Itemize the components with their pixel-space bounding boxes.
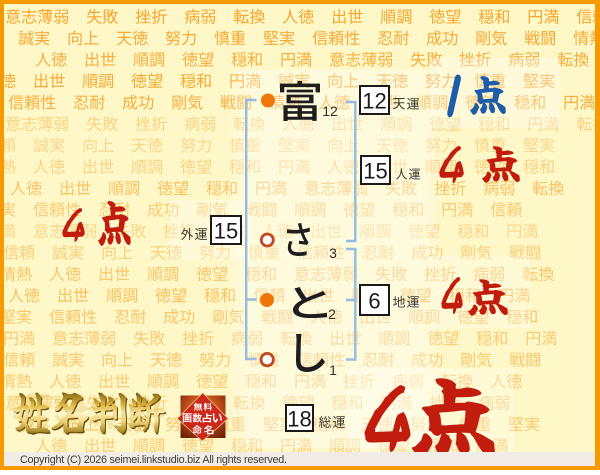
svg-text:15: 15 xyxy=(363,159,387,184)
svg-text:18: 18 xyxy=(287,407,311,432)
svg-text:12: 12 xyxy=(362,89,386,114)
svg-text:6: 6 xyxy=(368,289,380,314)
svg-text:15: 15 xyxy=(214,219,238,244)
svg-text:2: 2 xyxy=(328,306,336,322)
svg-text:Copyright (C) 2026 seimei.link: Copyright (C) 2026 seimei.linkstudio.biz… xyxy=(20,454,287,466)
svg-text:1: 1 xyxy=(329,362,337,378)
svg-text:12: 12 xyxy=(322,103,338,119)
svg-text:3: 3 xyxy=(329,245,337,261)
